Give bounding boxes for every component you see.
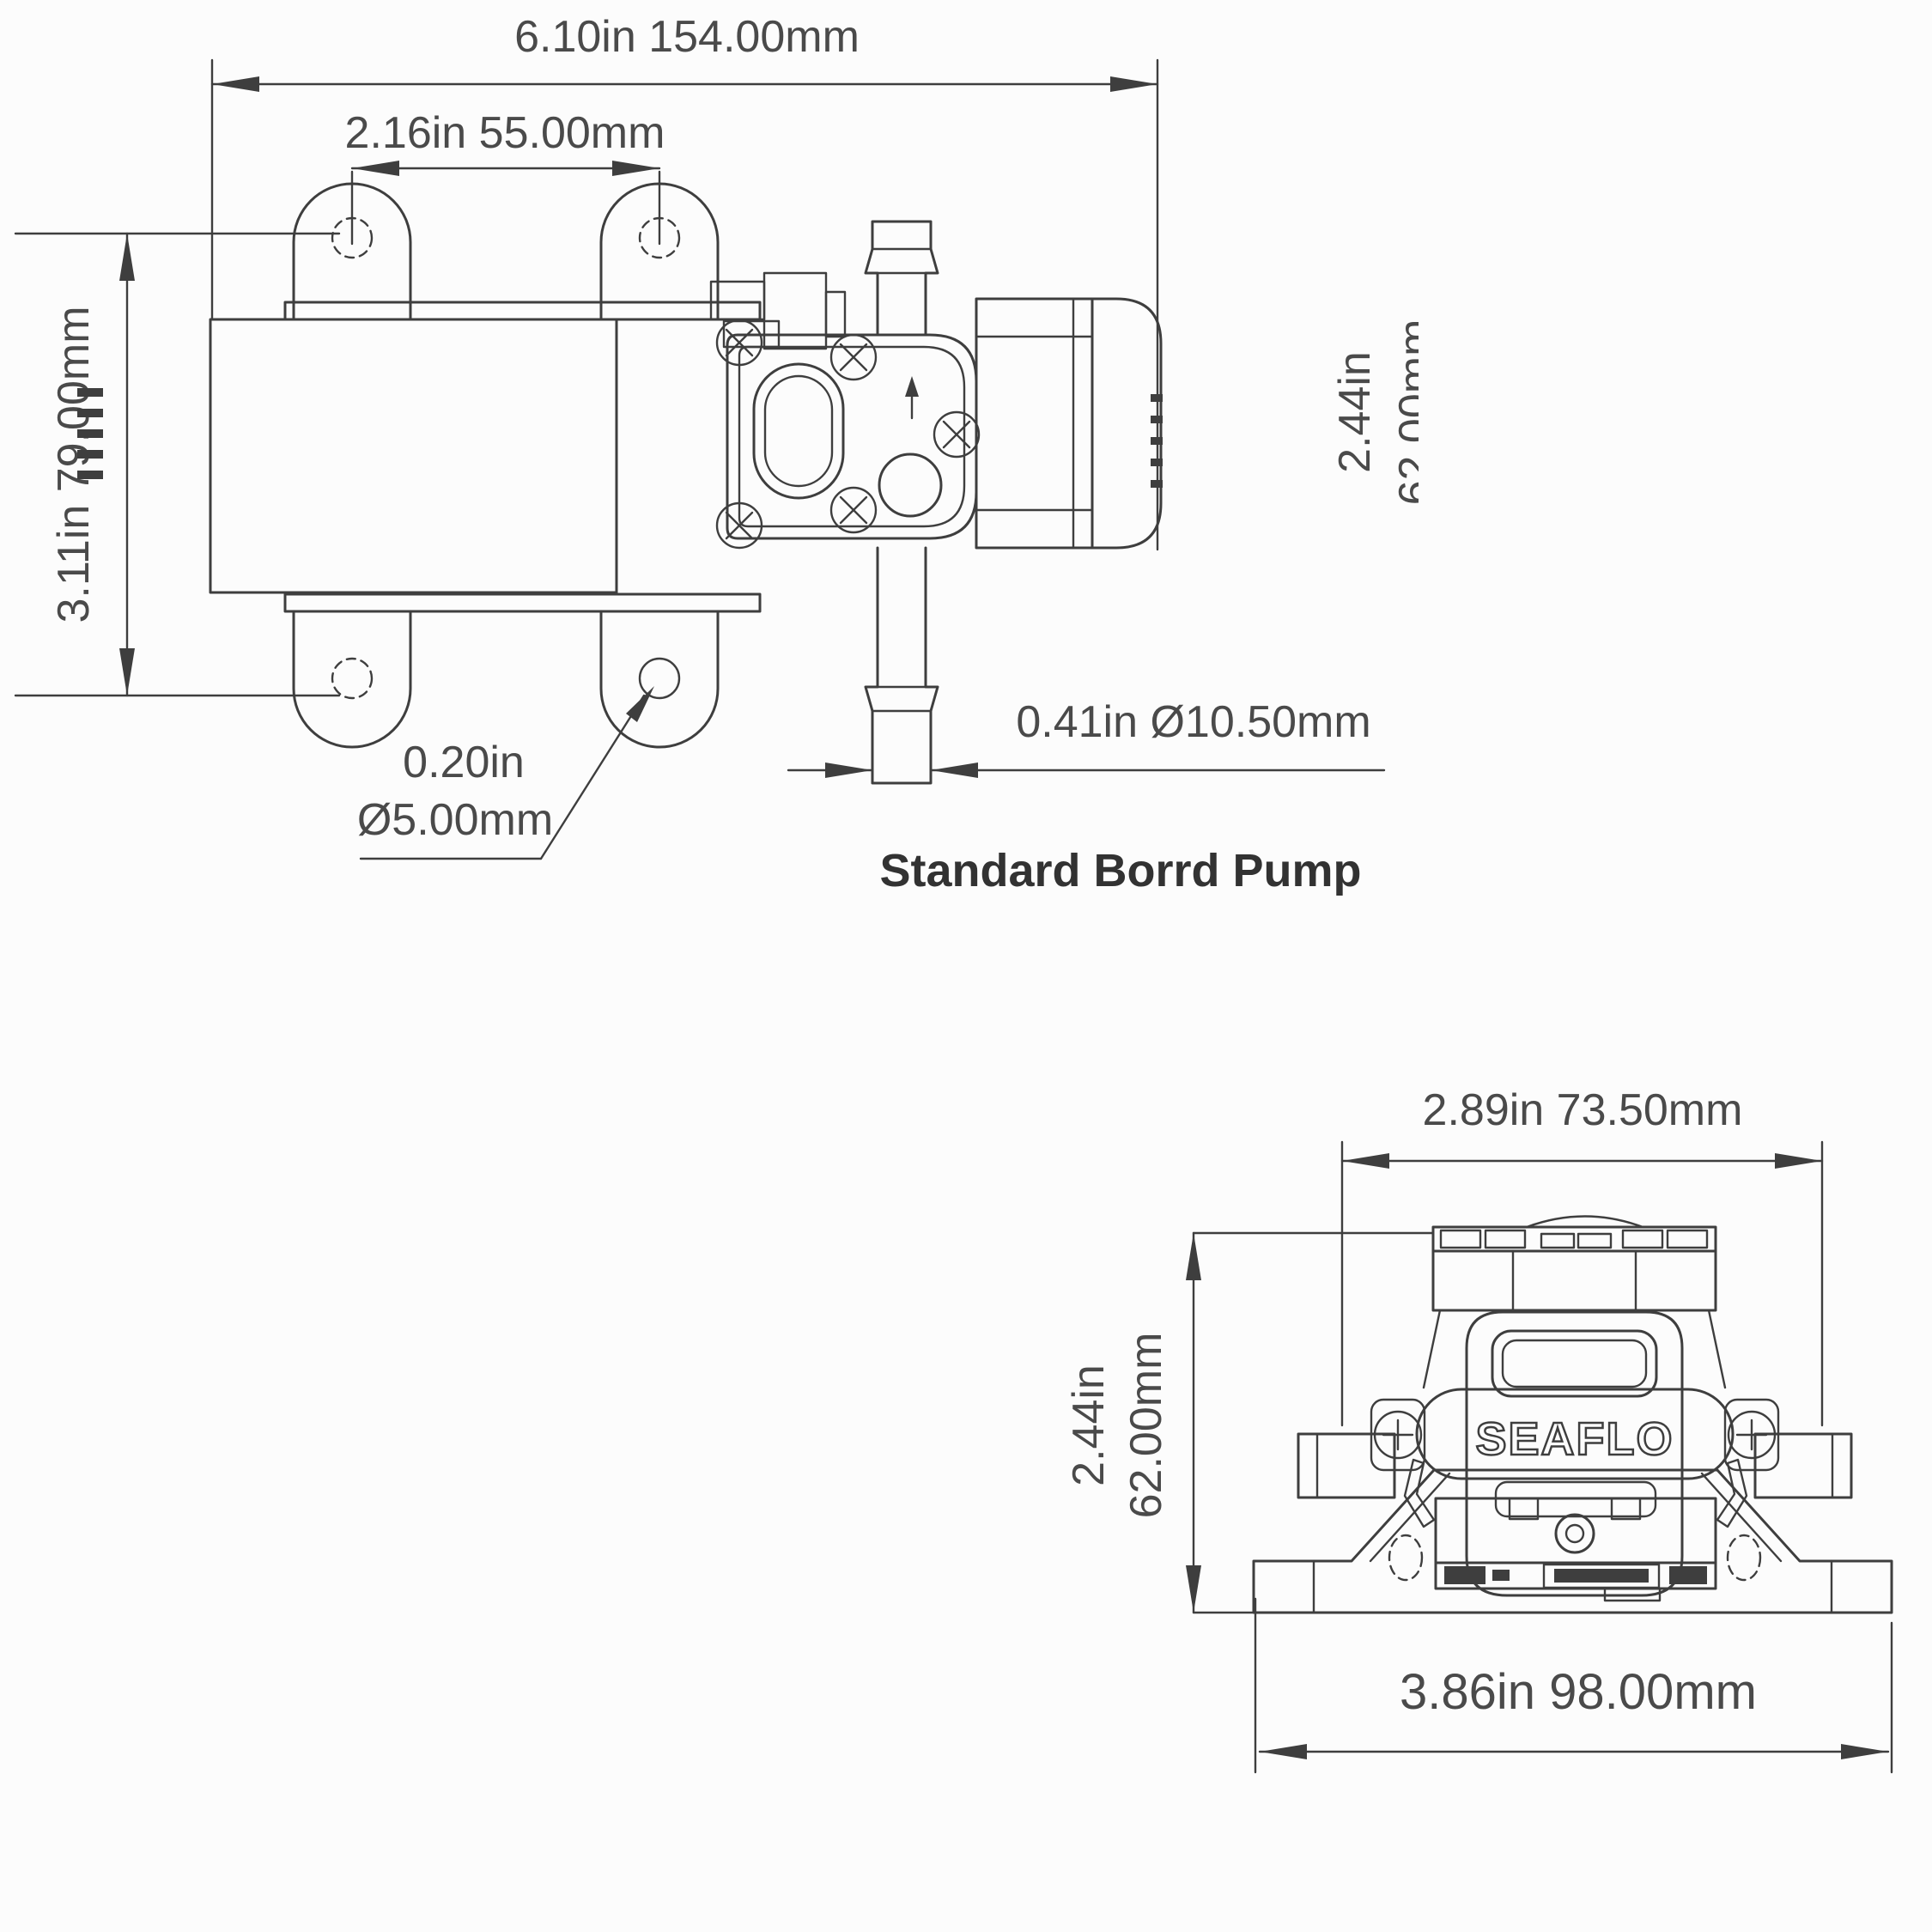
leader-arrow [626, 686, 654, 722]
dim-port-diameter: 0.41in Ø10.50mm [788, 697, 1384, 778]
dim-body-height-mm: 62.00mm [1121, 1333, 1171, 1519]
dim-arrow [119, 234, 135, 281]
base-mount-hole [1389, 1535, 1422, 1580]
dim-arrow [1110, 76, 1157, 92]
dim-body-width: 2.89in 73.50mm [1342, 1085, 1822, 1425]
callout-mount-hole-dia: 0.20in Ø5.00mm [357, 686, 654, 859]
dim-arrow [612, 161, 659, 176]
mounting-ear-bottom-right [601, 611, 718, 747]
dim-arrow [1841, 1744, 1888, 1759]
front-view: 2.89in 73.50mm 2.44in 62.00mm [1064, 1085, 1892, 1772]
pump-motor-body [210, 302, 760, 611]
dim-overall-length-label: 6.10in 154.00mm [514, 12, 860, 62]
dim-arrow [1186, 1565, 1201, 1613]
flow-arrow-icon [905, 376, 919, 397]
technical-drawing-page: 6.10in 154.00mm 2.16in 55.00mm 3.11in 79… [0, 0, 1932, 1932]
logo-bracket: SEAFLO [1371, 1389, 1778, 1479]
front-motor-body [1424, 1251, 1725, 1388]
dim-hole-spacing: 2.16in 55.00mm [345, 108, 665, 244]
pump-dimension-drawing: 6.10in 154.00mm 2.16in 55.00mm 3.11in 79… [0, 0, 1932, 1932]
side-view: 6.10in 154.00mm 2.16in 55.00mm 3.11in 79… [15, 12, 1440, 896]
drawing-caption: Standard Borrd Pump [879, 845, 1361, 896]
dim-body-height-in: 2.44in [1064, 1364, 1114, 1486]
valve-circle [879, 454, 941, 516]
dim-overall-length: 6.10in 154.00mm [212, 12, 1157, 550]
screw-icon [831, 335, 876, 380]
dim-arrow [1342, 1153, 1389, 1169]
dim-arrow [352, 161, 399, 176]
dim-arrow [1775, 1153, 1822, 1169]
dim-hole-spacing-label: 2.16in 55.00mm [345, 108, 665, 158]
mount-hole [640, 659, 679, 698]
dim-side-height-in: 2.44in [1330, 351, 1380, 473]
mount-hole [332, 659, 372, 698]
dim-arrow [1186, 1233, 1201, 1280]
dim-arrow [1260, 1744, 1307, 1759]
rear-end-cap [1092, 299, 1163, 548]
dim-body-width-label: 2.89in 73.50mm [1423, 1085, 1743, 1135]
dim-port-diameter-label: 0.41in Ø10.50mm [1016, 697, 1370, 747]
motor-coupling [976, 299, 1092, 548]
dim-mount-height-label: 3.11in 79.00mm [49, 306, 99, 623]
front-base-block [1405, 1460, 1747, 1601]
dim-base-width-label: 3.86in 98.00mm [1400, 1664, 1757, 1720]
diaphragm-oval-inner [765, 376, 832, 486]
dim-arrow [119, 648, 135, 696]
screw-icon [934, 412, 979, 457]
dim-side-height-labels: 2.44in 62.00mm [1330, 319, 1440, 506]
dim-arrow [931, 762, 978, 778]
diaphragm-oval [754, 364, 843, 498]
callout-line1: 0.20in [403, 738, 525, 787]
front-motor-cap [1433, 1217, 1716, 1252]
base-mount-hole [1728, 1535, 1760, 1580]
dim-side-height-mm: 62.00mm [1390, 319, 1440, 506]
callout-line2: Ø5.00mm [357, 795, 553, 845]
bottom-port-fitting [866, 548, 938, 783]
dim-arrow [212, 76, 259, 92]
dim-arrow [825, 762, 872, 778]
top-port-fitting [866, 222, 938, 335]
mounting-ear-bottom-left [294, 611, 410, 747]
brand-logo: SEAFLO [1475, 1413, 1674, 1465]
center-bolt [1556, 1515, 1594, 1552]
pump-head [717, 320, 979, 548]
dim-base-width: 3.86in 98.00mm [1255, 1599, 1892, 1772]
